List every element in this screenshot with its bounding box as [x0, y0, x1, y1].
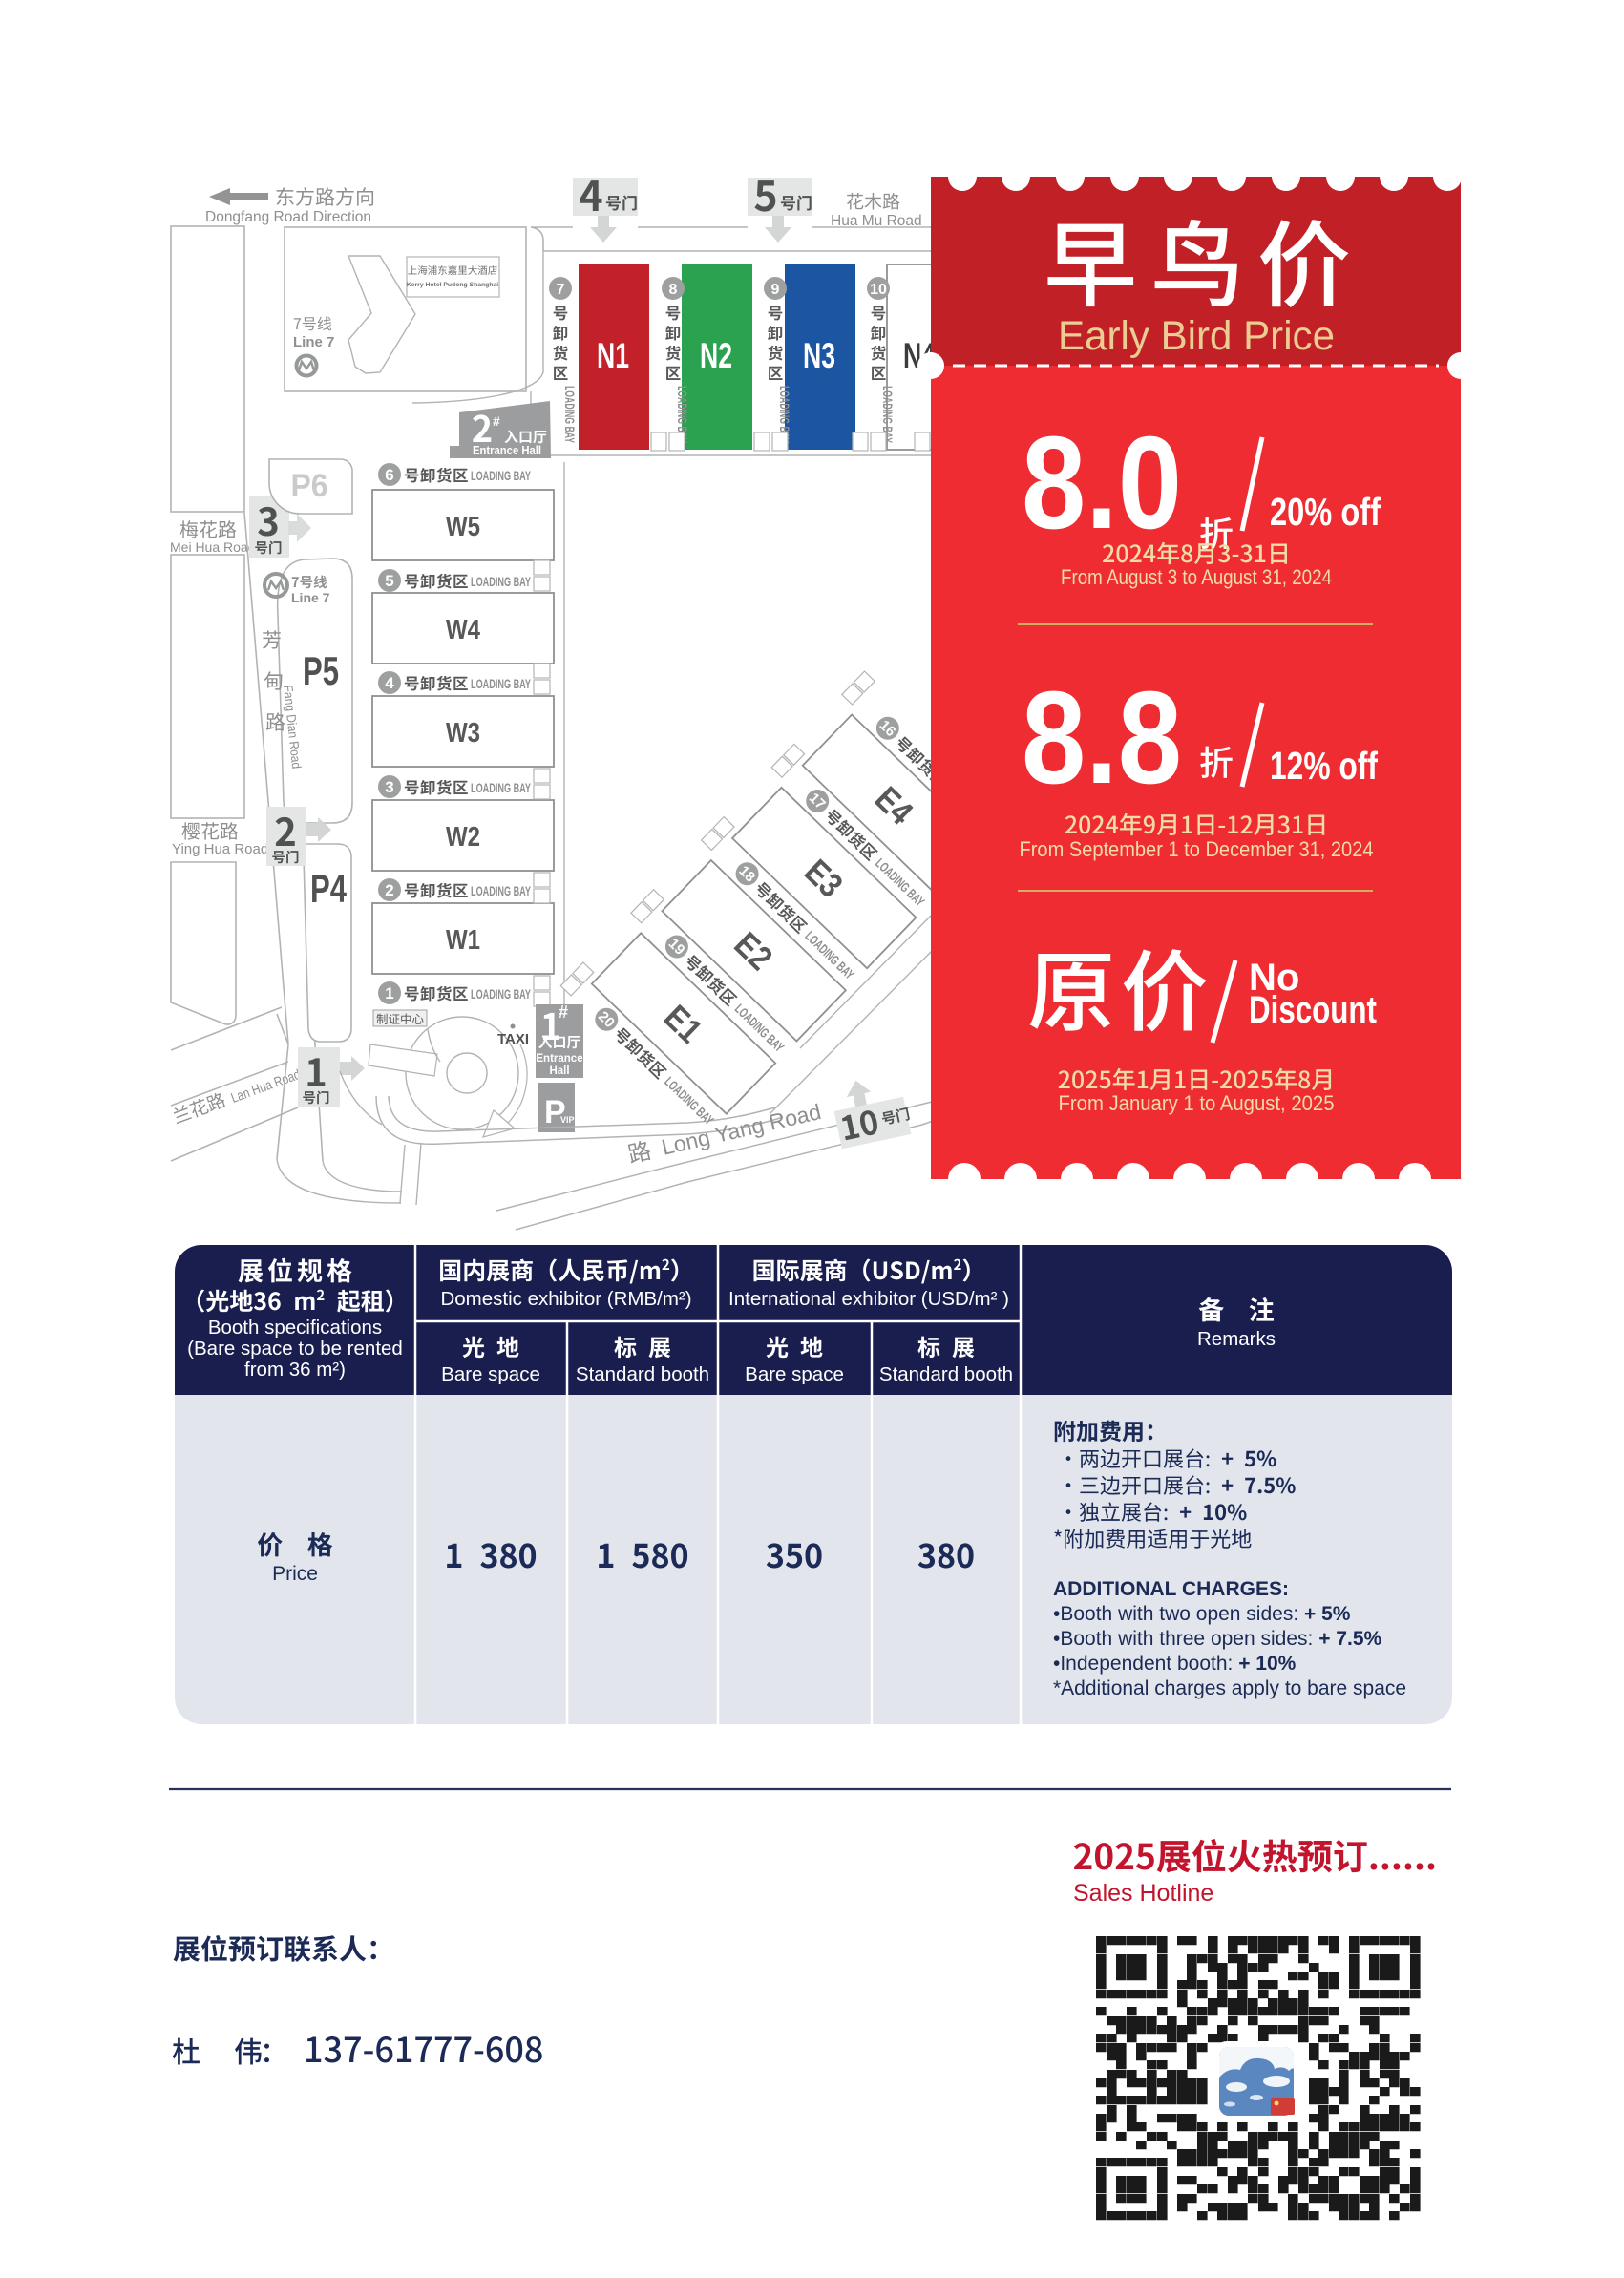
svg-text:W5: W5 — [446, 512, 480, 542]
svg-text:N3: N3 — [803, 336, 835, 375]
svg-text:International exhibitor (USD/m: International exhibitor (USD/m² ) — [728, 1288, 1009, 1310]
svg-text:Booth specifications: Booth specifications — [208, 1317, 382, 1339]
svg-text:5: 5 — [385, 572, 393, 590]
svg-text:Early Bird Price: Early Bird Price — [1058, 313, 1335, 359]
svg-text:12% off: 12% off — [1270, 744, 1378, 788]
svg-text:N1: N1 — [597, 336, 629, 375]
svg-text:LOADING BAY: LOADING BAY — [471, 468, 531, 483]
svg-text:6: 6 — [385, 466, 393, 484]
svg-text:Line 7: Line 7 — [291, 590, 330, 605]
svg-text:*Additional charges apply to b: *Additional charges apply to bare space — [1053, 1677, 1406, 1699]
svg-text:Mei Hua Road: Mei Hua Road — [170, 539, 256, 555]
svg-text:Entrance: Entrance — [536, 1053, 582, 1065]
svg-text:Discount: Discount — [1249, 989, 1377, 1031]
svg-text:4: 4 — [385, 674, 394, 692]
svg-text:Standard booth: Standard booth — [879, 1363, 1013, 1385]
svg-text:From January 1 to August, 2025: From January 1 to August, 2025 — [1059, 1091, 1335, 1115]
svg-text:W1: W1 — [446, 925, 480, 956]
svg-text:Hua Mu Road: Hua Mu Road — [831, 213, 922, 229]
svg-text:•Booth with three open sides:: •Booth with three open sides: + 7.5% — [1053, 1628, 1381, 1650]
svg-text:TAXI: TAXI — [497, 1031, 529, 1047]
svg-text:8: 8 — [669, 282, 678, 298]
svg-text:P4: P4 — [310, 866, 347, 911]
svg-text:LOADING BAY: LOADING BAY — [562, 386, 577, 443]
svg-text:2: 2 — [385, 881, 393, 899]
svg-text:from 36 m²): from 36 m²) — [244, 1359, 346, 1381]
svg-text:LOADING BAY: LOADING BAY — [471, 780, 531, 795]
svg-text:ADDITIONAL CHARGES:: ADDITIONAL CHARGES: — [1053, 1578, 1289, 1600]
svg-text:•Independent booth: + 10%: •Independent booth: + 10% — [1053, 1653, 1297, 1675]
svg-text:Kerry Hotel Pudong Shanghai: Kerry Hotel Pudong Shanghai — [407, 282, 498, 288]
svg-text:LOADING BAY: LOADING BAY — [471, 574, 531, 589]
svg-text:Price: Price — [272, 1563, 318, 1585]
svg-text:8.8: 8.8 — [1022, 664, 1182, 812]
svg-text:9: 9 — [771, 282, 780, 298]
svg-text:LOADING BAY: LOADING BAY — [471, 883, 531, 898]
svg-text:(Bare space to be rented: (Bare space to be rented — [187, 1338, 403, 1360]
svg-text:From August 3 to August 31, 20: From August 3 to August 31, 2024 — [1061, 565, 1332, 589]
svg-text:Bare space: Bare space — [441, 1363, 540, 1385]
svg-text:N2: N2 — [700, 336, 732, 375]
svg-text:10: 10 — [870, 282, 887, 298]
svg-text:Domestic exhibitor (RMB/m²): Domestic exhibitor (RMB/m²) — [440, 1288, 691, 1310]
svg-text:Bare space: Bare space — [745, 1363, 844, 1385]
svg-text:P: P — [544, 1094, 566, 1130]
svg-text:Hall: Hall — [549, 1065, 569, 1077]
svg-text:Dongfang Road Direction: Dongfang Road Direction — [205, 209, 371, 225]
svg-text:Sales Hotline: Sales Hotline — [1073, 1880, 1213, 1907]
svg-text:#: # — [559, 1002, 568, 1022]
svg-text:20% off: 20% off — [1270, 490, 1381, 534]
svg-text:P6: P6 — [291, 468, 328, 504]
svg-text:Remarks: Remarks — [1197, 1328, 1276, 1350]
svg-text:3: 3 — [385, 778, 393, 796]
svg-text:7: 7 — [557, 282, 565, 298]
svg-text:#: # — [493, 413, 500, 429]
svg-text:•Booth with two open sides: +: •Booth with two open sides: + 5% — [1053, 1603, 1351, 1625]
svg-text:LOADING BAY: LOADING BAY — [471, 676, 531, 691]
svg-text:Entrance Hall: Entrance Hall — [473, 444, 541, 457]
svg-text:Standard booth: Standard booth — [576, 1363, 709, 1385]
svg-text:VIP: VIP — [560, 1115, 575, 1125]
svg-text:W3: W3 — [446, 718, 480, 749]
svg-text:From September 1 to December 3: From September 1 to December 31, 2024 — [1020, 837, 1374, 861]
svg-text:P5: P5 — [303, 648, 339, 693]
svg-text:1: 1 — [385, 984, 393, 1002]
svg-text:W4: W4 — [446, 615, 480, 645]
svg-text:8.0: 8.0 — [1022, 410, 1182, 557]
svg-text:Ying Hua Road: Ying Hua Road — [172, 841, 268, 857]
svg-text:LOADING BAY: LOADING BAY — [471, 986, 531, 1002]
svg-text:Line 7: Line 7 — [293, 334, 334, 350]
svg-text:W2: W2 — [446, 822, 480, 853]
